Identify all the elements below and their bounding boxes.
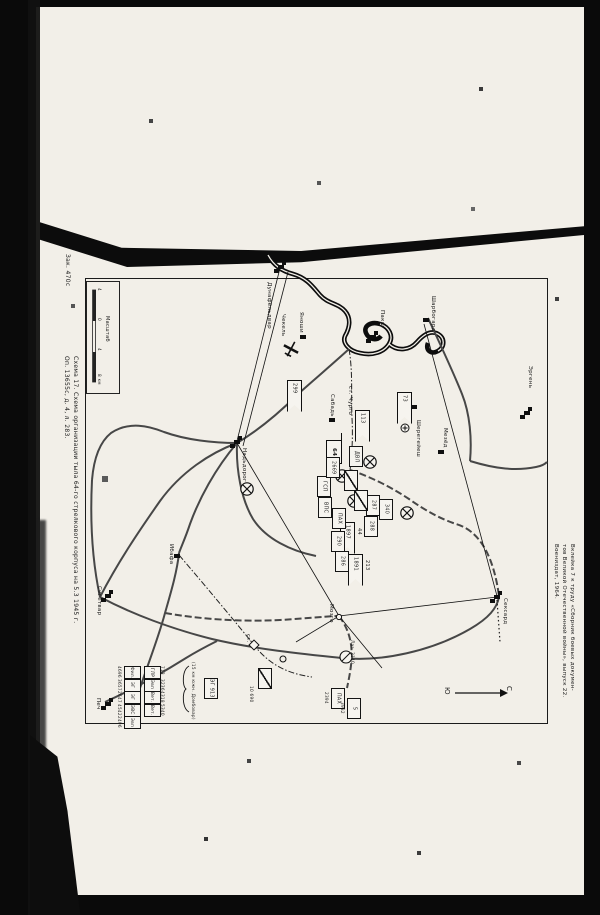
boundary-line — [424, 324, 497, 596]
pennant-number: 113 — [360, 411, 366, 423]
hospital-number: 3236 — [160, 679, 165, 691]
unit-box-label: ДВЛ — [354, 451, 359, 463]
unit-box-label: 340 — [384, 504, 389, 514]
unit-box: 286 — [335, 551, 349, 572]
hospital-abbr: Эвп — [150, 680, 155, 689]
unit-box: ПАХ — [332, 508, 346, 529]
town-label: Яноши — [298, 312, 304, 333]
hospital-box: Вет. — [144, 691, 161, 704]
town-blob — [174, 554, 180, 558]
hospital-box: Вет. — [144, 704, 161, 717]
town-label: Сигетвар — [96, 586, 102, 615]
hospital-abbr: ЭГ 913 — [209, 679, 214, 698]
unit-box-label: 5 — [352, 707, 357, 710]
town-label: Шерегейеш — [415, 420, 421, 457]
hospital-abbr: ЭГ — [130, 682, 135, 688]
town-blob — [438, 450, 444, 454]
hospital-box: Эвп — [144, 679, 161, 692]
hospital-abbr: ЭВС — [130, 705, 135, 715]
river — [268, 255, 391, 354]
town-label: Эргень — [527, 366, 533, 388]
hospital-abbr: Эвп — [130, 718, 135, 727]
town-circle — [336, 614, 341, 619]
unit-box-label: ВПС — [323, 502, 328, 513]
hospital-box: Эвп — [124, 716, 141, 729]
dotted-line — [497, 600, 500, 642]
unit-box-label: 2669 — [331, 461, 336, 474]
hospital-abbr: ЭГ — [130, 694, 135, 700]
hospital-number: 4318 — [160, 691, 165, 703]
airfield-icon — [280, 338, 302, 360]
hospital-box: Фил. — [124, 666, 141, 679]
unit-number-label: Лаз. 2140 — [350, 640, 355, 664]
hospital-number: 713 — [160, 666, 165, 675]
unit-box: 287 — [366, 495, 380, 516]
road — [237, 443, 316, 556]
hospital-abbr: Вет. — [150, 705, 155, 715]
hospital-box: ЭГ — [124, 679, 141, 692]
town-blob — [370, 335, 376, 339]
town-label: Шарбогард — [430, 296, 436, 332]
pennant-side-number: 213 — [364, 560, 370, 570]
unit-box — [344, 470, 358, 491]
hq-number: 64 — [331, 448, 337, 456]
unit-box-label: ПАХ — [337, 513, 342, 524]
point-icon — [280, 656, 286, 662]
town-label: Сабадь — [329, 394, 335, 417]
unit-box: 290 — [331, 531, 345, 552]
hospital-number: 2647 — [117, 691, 122, 703]
unit-box: 5 — [347, 698, 361, 719]
pennant-number: 73 — [402, 393, 408, 402]
unit-box: 288 — [364, 516, 378, 537]
town-label: Дунафёльдвар — [266, 282, 272, 329]
town-label: Ибафа — [168, 544, 174, 564]
hospital-box: ГЛР — [144, 666, 161, 679]
unit-box: ГСП — [317, 476, 331, 497]
town-blob — [494, 595, 500, 599]
town-label: Печ — [95, 698, 101, 710]
road — [91, 480, 100, 597]
hospital-number: 3657 — [117, 679, 122, 691]
unit-number-label: 3982 — [340, 702, 345, 714]
hospital-number: 2496 — [117, 716, 122, 728]
hospital-box: ЭГ — [124, 691, 141, 704]
scanned-page: Зак. 470с Схема 17. Схема организации ты… — [0, 0, 600, 915]
hospital-number: 4542 — [117, 704, 122, 716]
pennant-number: 1891 — [353, 555, 359, 571]
road — [179, 443, 237, 553]
pennant-side-number: 44 — [356, 528, 362, 535]
map-linework — [0, 0, 600, 915]
unit-number-label: 2394 — [324, 692, 329, 704]
town-blob — [105, 702, 111, 706]
unit-box-label: ГСП — [322, 481, 327, 492]
unit-box-label: 290 — [336, 536, 341, 546]
boundary-line — [237, 268, 280, 441]
pennant-number: 299 — [292, 381, 298, 393]
railway — [179, 555, 312, 677]
town-label: Мезёд — [442, 428, 448, 448]
unit-box — [354, 490, 368, 511]
hospital-number: 5340 — [160, 704, 165, 716]
unit-box: 2669 — [326, 457, 340, 478]
town-label: Сексард — [502, 598, 508, 624]
town-label: Чекель — [280, 314, 286, 336]
unit-box-label: 286 — [340, 556, 345, 566]
unit-box: ВПС — [318, 497, 332, 518]
hospital-box-detached: ЭГ 913 — [204, 678, 218, 699]
road — [470, 461, 547, 469]
town-blob — [278, 265, 284, 269]
town-label: Пакш — [379, 310, 385, 327]
hospital-number: 4696 — [117, 666, 122, 678]
hospital-box: ЭВС — [124, 704, 141, 717]
town-label: Надьдорог — [241, 448, 247, 482]
town-blob — [329, 418, 335, 422]
hospital-abbr: ГЛР — [150, 668, 155, 677]
town-label: ст. Чурго — [347, 386, 353, 415]
compass-arrowhead — [500, 689, 508, 697]
unit-number-label: 10 690 — [249, 686, 254, 702]
town-blob — [524, 411, 530, 415]
hospital-group-bracket — [183, 666, 189, 712]
boundary-line — [296, 597, 497, 642]
town-blob — [234, 440, 240, 444]
hospital-abbr: Вет. — [150, 692, 155, 702]
town-label: Мозго — [328, 604, 334, 623]
road — [100, 443, 237, 597]
unit-box-label: 287 — [371, 500, 376, 510]
town-blob — [423, 318, 429, 322]
unit-box: ДВЛ — [349, 446, 363, 467]
road — [165, 613, 339, 621]
town-label: ст. — [245, 634, 251, 643]
road — [428, 318, 471, 461]
unit-box: 340 — [379, 499, 393, 520]
unit-box-label: 288 — [369, 521, 374, 531]
hospital-abbr: Фил. — [130, 667, 135, 679]
town-blob — [300, 335, 306, 339]
town-blob — [105, 594, 111, 598]
unit-box — [258, 668, 272, 689]
